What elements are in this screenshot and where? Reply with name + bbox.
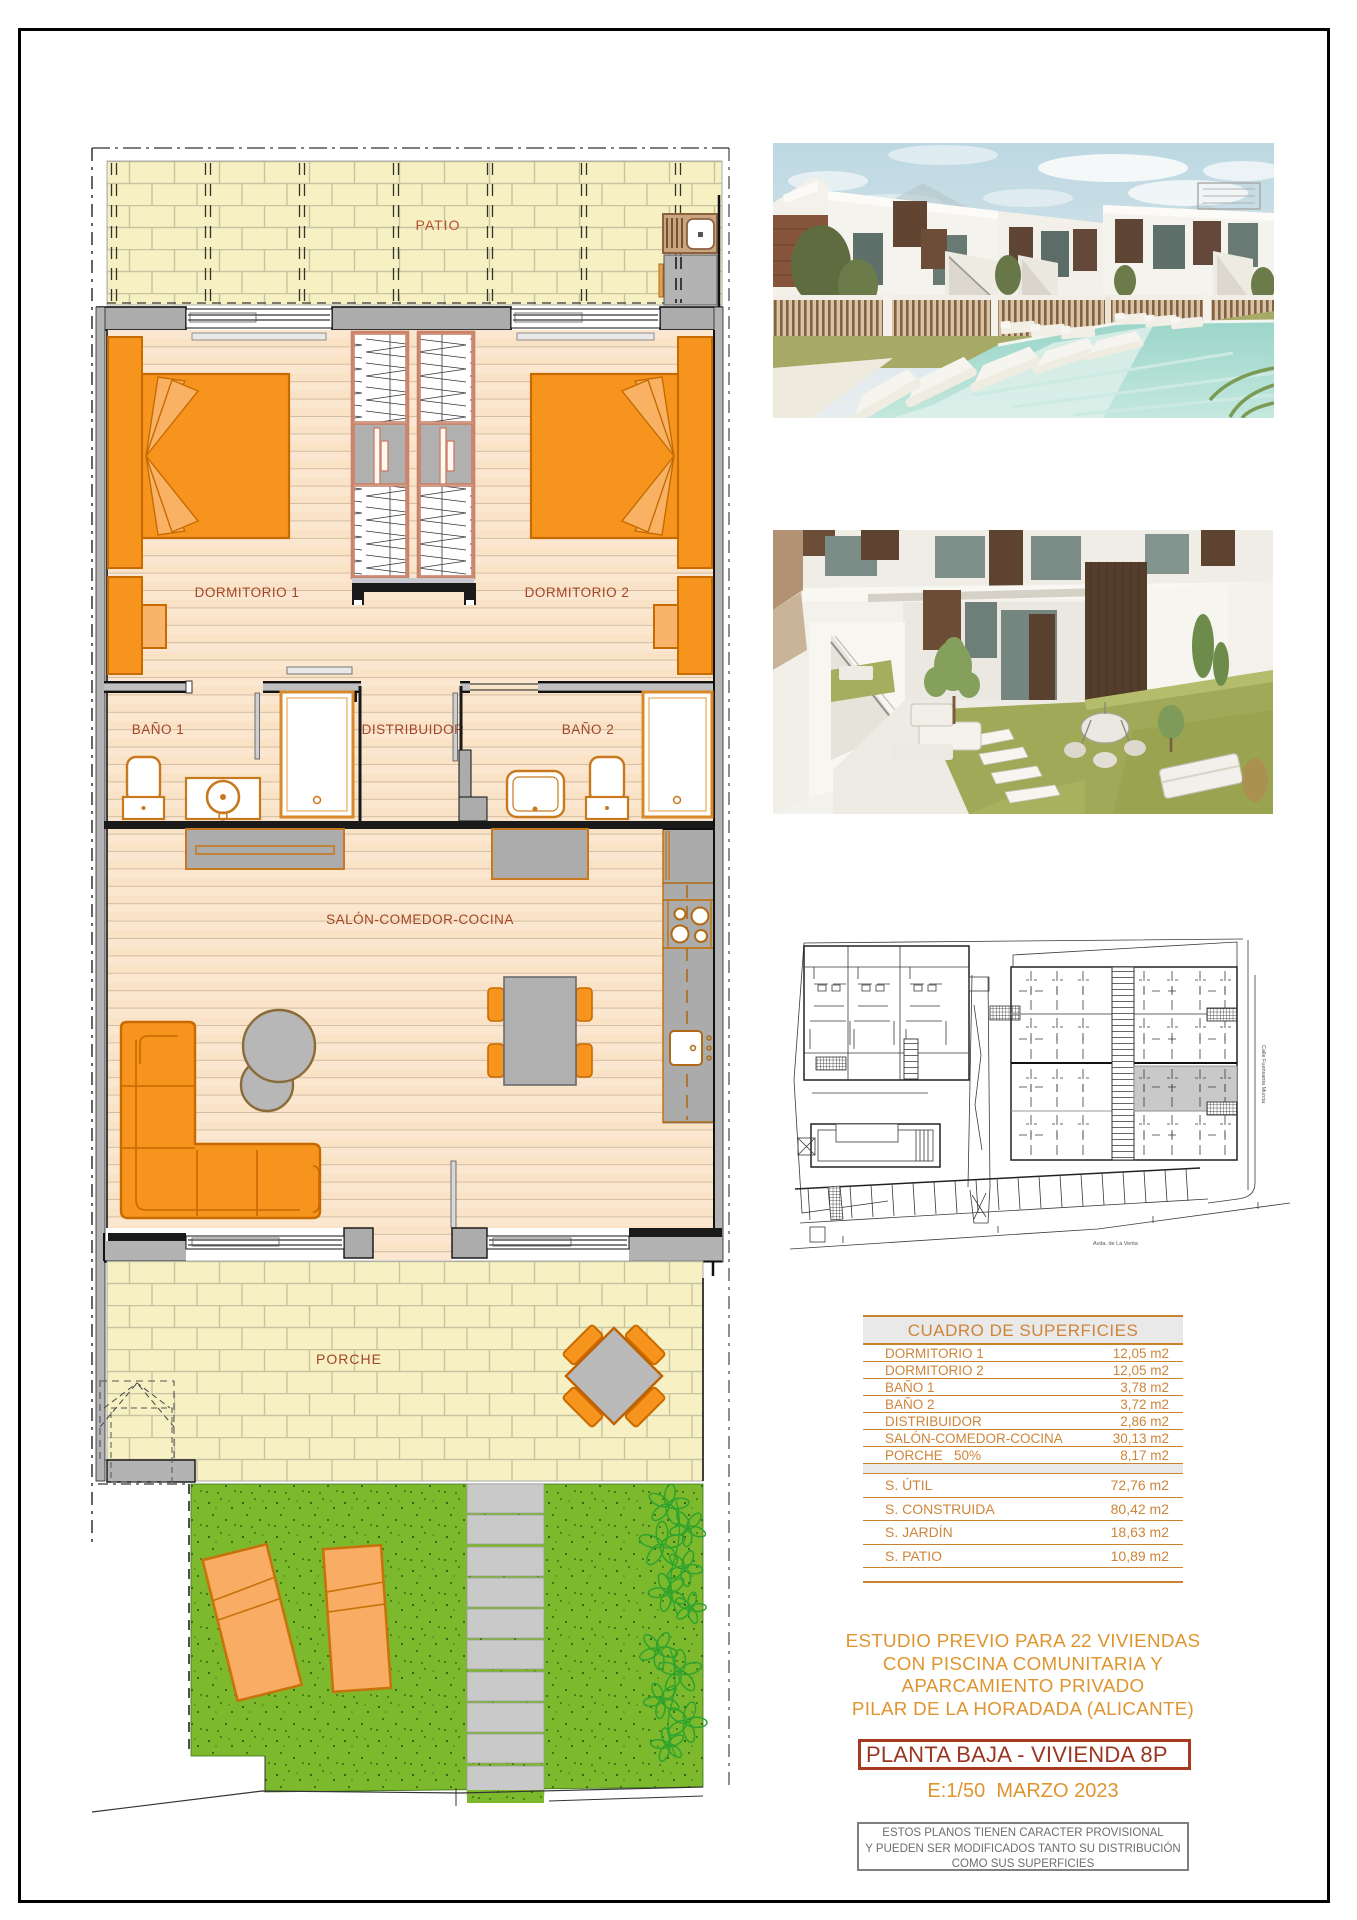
- svg-text:PORCHE: PORCHE: [316, 1351, 382, 1367]
- svg-text:Avda. de La Venta: Avda. de La Venta: [1093, 1241, 1139, 1247]
- svg-text:PATIO: PATIO: [416, 217, 461, 233]
- svg-text:BAÑO 2: BAÑO 2: [562, 722, 615, 737]
- svg-text:Calle Fuensanta Murcia: Calle Fuensanta Murcia: [1260, 1045, 1266, 1104]
- svg-text:BAÑO 1: BAÑO 1: [132, 722, 185, 737]
- svg-text:DORMITORIO 1: DORMITORIO 1: [195, 585, 300, 600]
- svg-text:SALÓN-COMEDOR-COCINA: SALÓN-COMEDOR-COCINA: [326, 912, 514, 927]
- svg-text:DORMITORIO 2: DORMITORIO 2: [525, 585, 630, 600]
- svg-text:DISTRIBUIDOR: DISTRIBUIDOR: [362, 722, 465, 737]
